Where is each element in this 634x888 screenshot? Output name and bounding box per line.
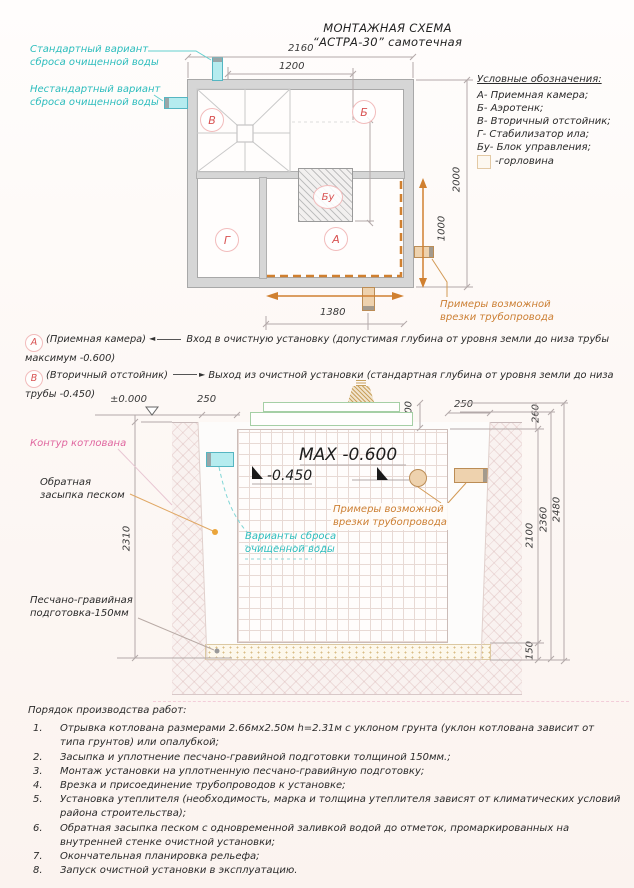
section-inlet-pipe-circle (409, 469, 427, 487)
procedure-title: Порядок производства работ: (28, 704, 622, 718)
bedding-label: Песчано-гравийная подготовка-150мм (30, 595, 172, 620)
plan-dim-inner-width: 1200 (279, 61, 304, 72)
section-cover-lower-slab (250, 412, 413, 426)
plan-inlet-pipe-bottom (362, 287, 375, 311)
drawing-title: МОНТАЖНАЯ СХЕМА “АСТРА-30” самотечная (300, 22, 475, 49)
section-cover-upper-slab (263, 402, 400, 412)
pit-contour-label: Контур котлована (30, 438, 150, 451)
section-outlet-pipe (206, 452, 234, 467)
note-b-chamber: (Вторичный отстойник) (46, 370, 168, 381)
section-sand-gravel-bedding (205, 644, 491, 660)
montage-scheme-drawing: МОНТАЖНАЯ СХЕМА “АСТРА-30” самотечная Ст… (0, 0, 634, 888)
drawing-title-line1: МОНТАЖНАЯ СХЕМА (300, 22, 475, 36)
plan-dim-inner-height: 1000 (437, 212, 448, 246)
section-dim-pit-2310: 2310 (122, 522, 133, 556)
section-outlet-level: -0.450 (267, 468, 312, 484)
plan-inlet-pipe-right (414, 246, 434, 258)
chamber-b-marker: Б (352, 100, 376, 124)
backfill-label: Обратная засыпка песком (40, 477, 135, 502)
outlet-arrow-icon: ► (199, 370, 205, 379)
chamber-notes: А(Приемная камера) ◄ Вход в очистную уст… (25, 332, 622, 404)
plan-outlet-pipe-left (164, 97, 188, 109)
inlet-arrow-line (157, 339, 181, 340)
legend-item-a: А- Приемная камера; (477, 90, 631, 103)
legend-item-g: Г- Стабилизатор ила; (477, 129, 631, 142)
note-a-chamber: (Приемная камера) (46, 334, 146, 345)
section-max-level: MAX -0.600 (299, 445, 397, 465)
chamber-bu-marker: Бу (313, 185, 343, 209)
section-dim-tank-2100: 2100 (525, 519, 536, 553)
legend-item-b: Б- Аэротенк; (477, 103, 631, 116)
procedure-step: Засыпка и уплотнение песчано-гравийной п… (28, 751, 622, 765)
plan-dim-outer-width: 2160 (288, 43, 313, 54)
legend: Условные обозначения: А- Приемная камера… (477, 74, 631, 169)
procedure-list: Отрывка котлована размерами 2.66мх2.50м … (28, 722, 622, 878)
note-inlet: А(Приемная камера) ◄ Вход в очистную уст… (25, 332, 622, 367)
legend-item-neck: -горловина (495, 156, 554, 169)
legend-title: Условные обозначения: (477, 74, 631, 87)
procedure-step: Монтаж установки на уплотненную песчано-… (28, 765, 622, 779)
plan-dim-outer-height: 2000 (452, 163, 463, 197)
plan-dim-bottom-width: 1380 (320, 307, 345, 318)
plan-tap-leader (432, 259, 447, 297)
chamber-v-marker: В (200, 108, 224, 132)
pink-divider (153, 701, 629, 702)
inlet-arrow-icon: ◄ (149, 334, 155, 343)
discharge-options-label: Варианты сброса очищенной воды (245, 531, 340, 556)
procedure-step: Врезка и присоединение трубопроводов к у… (28, 779, 622, 793)
legend-item-bu: Бу- Блок управления; (477, 142, 631, 155)
section-dim-mid-2360: 2360 (539, 503, 550, 537)
chamber-g-marker: Г (215, 228, 239, 252)
legend-item-v: В- Вторичный отстойник; (477, 116, 631, 129)
section-tap-note: Примеры возможной врезки трубопровода (331, 503, 450, 530)
procedure-step: Отрывка котлована размерами 2.66мх2.50м … (28, 722, 622, 750)
work-procedure: Порядок производства работ: Отрывка котл… (28, 704, 622, 878)
note-outlet: В(Вторичный отстойник) ► Выход из очистн… (25, 368, 622, 403)
section-inlet-pipe (454, 468, 488, 483)
note-a-marker: А (25, 334, 43, 352)
procedure-step: Запуск очистной установки в эксплуатацию… (28, 864, 622, 878)
plan-outlet-pipe-top (212, 57, 223, 81)
chamber-a-marker: А (324, 227, 348, 251)
section-dim-bedding-150: 150 (525, 639, 536, 663)
procedure-step: Окончательная планировка рельефа; (28, 850, 622, 864)
plan-inner-wall-vertical (260, 178, 266, 278)
drawing-title-line2: “АСТРА-30” самотечная (300, 36, 475, 50)
section-dim-top-260: 260 (531, 401, 542, 427)
note-b-marker: В (25, 370, 43, 388)
neck-square-icon (477, 155, 491, 169)
plan-tap-note: Примеры возможной врезки трубопровода (440, 299, 568, 324)
procedure-step: Обратная засыпка песком с одновременной … (28, 822, 622, 850)
outlet-arrow-line (173, 374, 197, 375)
outfall-standard-label: Стандартный вариант сброса очищенной вод… (30, 44, 168, 69)
outfall-nonstandard-label: Нестандартный вариант сброса очищенной в… (30, 84, 175, 109)
section-dim-total-2480: 2480 (552, 493, 563, 527)
procedure-step: Установка утеплителя (необходимость, мар… (28, 793, 622, 821)
